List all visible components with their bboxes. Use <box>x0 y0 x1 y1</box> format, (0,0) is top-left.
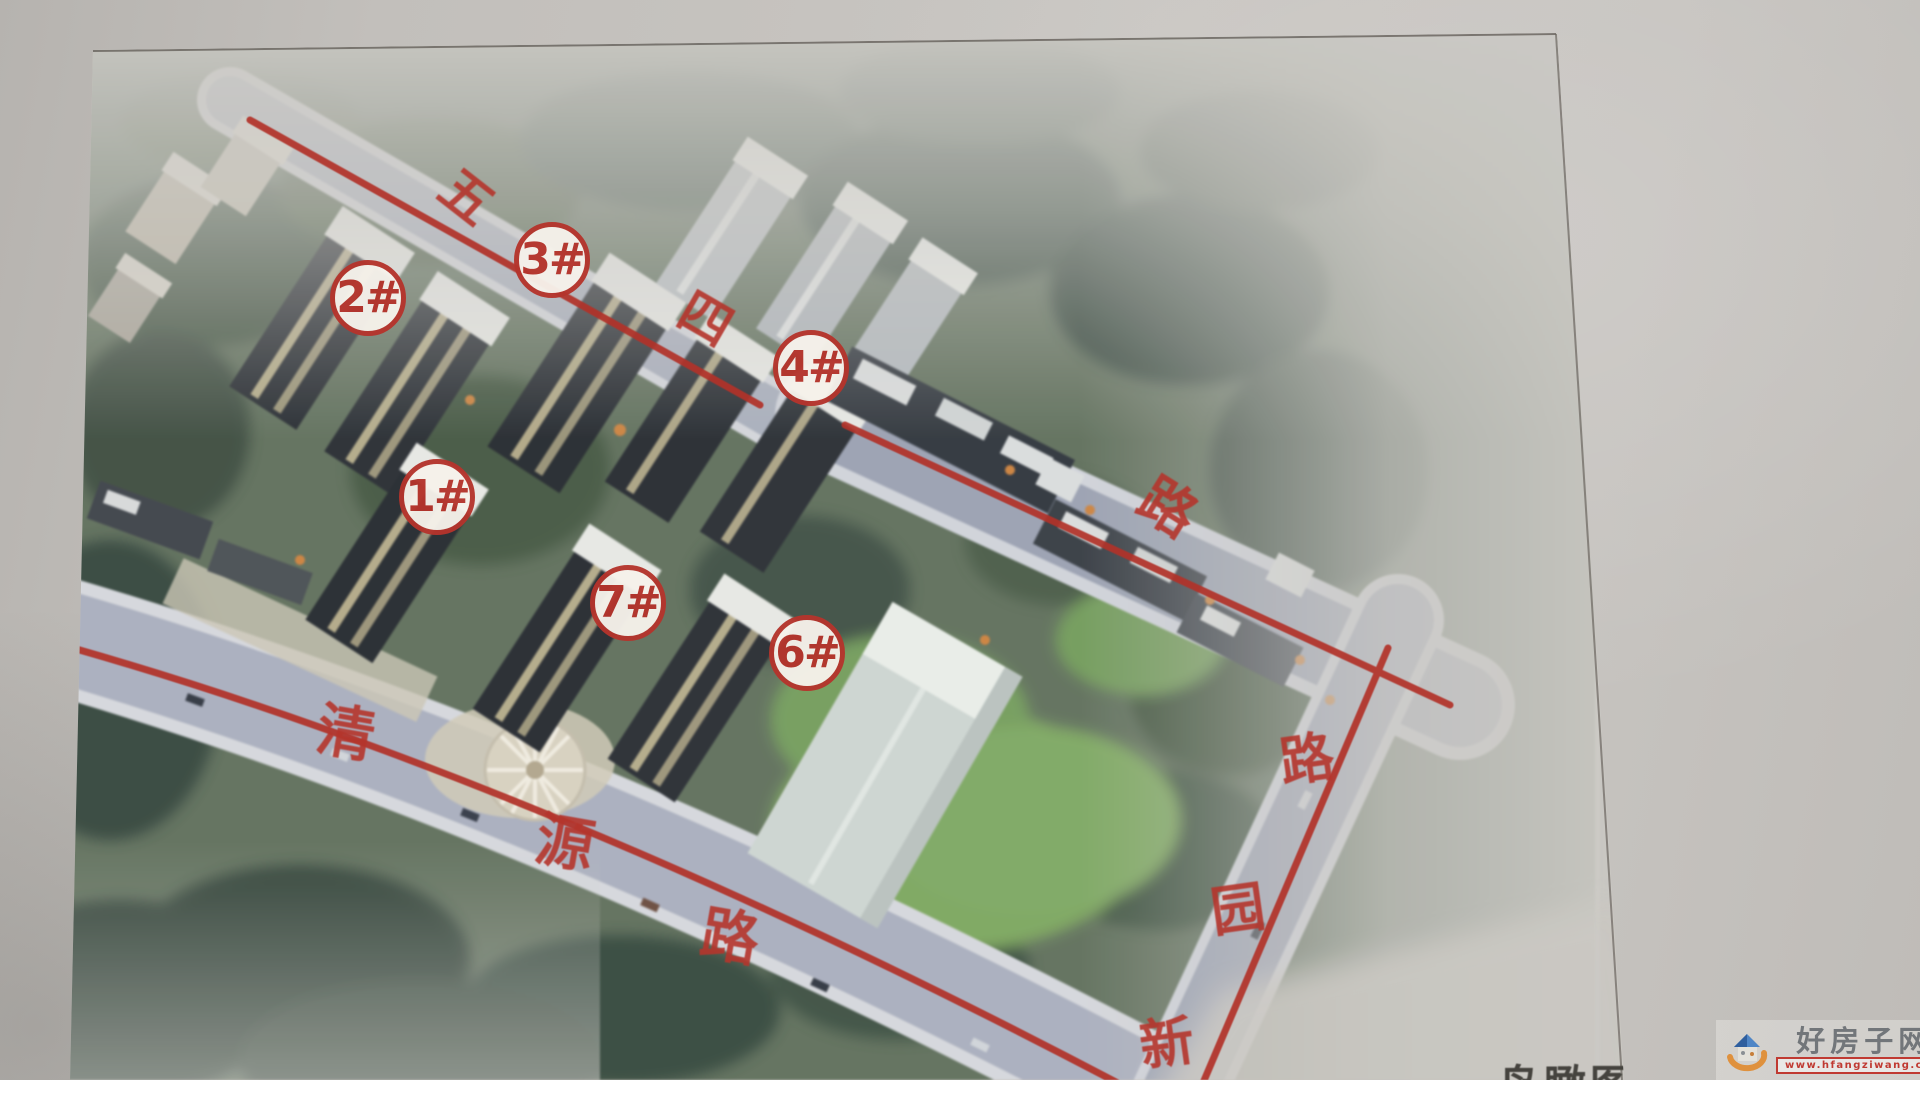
building-badge: 1# <box>399 459 475 535</box>
road-label-char: 清 <box>312 699 379 766</box>
road-label-char: 园 <box>1208 880 1269 941</box>
poster-caption: 鸟瞰图 <box>1498 1052 1636 1113</box>
house-logo-icon <box>1720 1023 1774 1077</box>
watermark-url: www.hfangziwang.com <box>1776 1057 1920 1074</box>
building-badge: 3# <box>514 222 590 298</box>
road-label-char: 路 <box>696 903 763 970</box>
building-badge: 4# <box>773 330 849 406</box>
building-badge: 6# <box>769 615 845 691</box>
road-label-char: 源 <box>531 809 598 876</box>
building-badge: 2# <box>330 260 406 336</box>
road-label-char: 路 <box>1277 730 1338 791</box>
building-badge: 7# <box>590 565 666 641</box>
watermark: 好房子网 www.hfangziwang.com <box>1716 1020 1920 1080</box>
road-label-char: 新 <box>1137 1014 1198 1075</box>
watermark-site-name: 好房子网 <box>1796 1026 1920 1056</box>
